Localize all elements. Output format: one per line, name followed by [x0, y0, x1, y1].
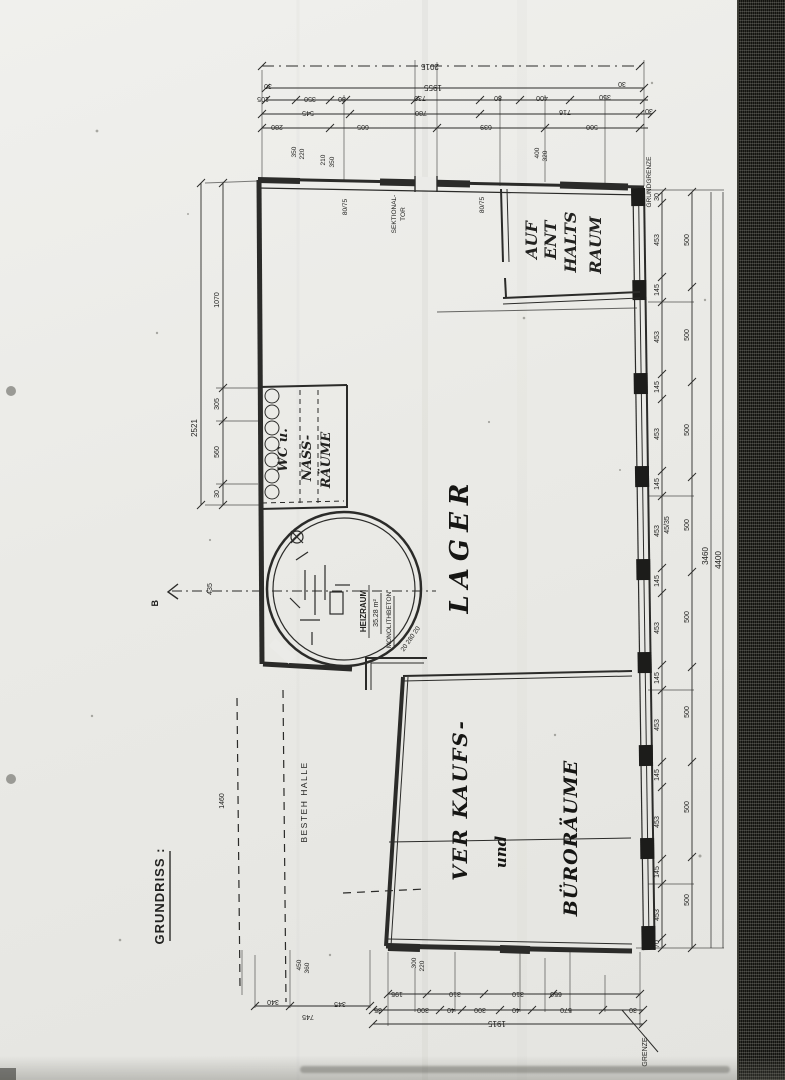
room-label-und: und: [492, 835, 510, 868]
dim-label: 453: [654, 234, 661, 246]
dim-label: 3460: [701, 547, 710, 565]
dim-label: 500: [684, 801, 691, 813]
left-wall: [259, 180, 262, 664]
door-size-label: 80/75: [342, 198, 349, 215]
dim-label: 345: [334, 1000, 346, 1007]
dim-label: 300: [411, 957, 418, 968]
dim-label: 320: [542, 150, 549, 161]
heizraum-outer-circle: [267, 512, 421, 666]
scanned-floor-plan-page: 2015 30 1955 30 105 350 80 730 80 400 35…: [0, 0, 785, 1080]
dim-label: 560: [214, 446, 221, 458]
right-dimension-ticks: [658, 188, 696, 952]
dim-label: 30: [645, 107, 653, 114]
dim-label: 500: [586, 123, 598, 130]
dim-label: 310: [512, 990, 524, 997]
dim-label: 450: [296, 959, 303, 970]
svg-text:SEKTIONAL-: SEKTIONAL-: [391, 195, 398, 234]
dim-label: 500: [684, 611, 691, 623]
heizraum-vestibule: [366, 658, 427, 690]
dim-label: 500: [684, 329, 691, 341]
dim-label: 435: [207, 583, 214, 595]
dim-label: 145: [654, 575, 661, 587]
dim-label: 30: [654, 193, 661, 201]
dim-label: 350: [304, 95, 316, 102]
section-marker-label: B: [150, 600, 160, 607]
wc-nassraeume: WC u. NASS- RÄUME: [259, 385, 347, 509]
dim-label: 40: [447, 1006, 455, 1013]
dim-label: 500: [684, 234, 691, 246]
top-wall: [258, 176, 644, 195]
dim-label: 500: [684, 519, 691, 531]
dim-label: 40: [512, 1006, 520, 1013]
dim-label: 500: [684, 424, 691, 436]
dim-label: 80: [338, 95, 346, 102]
dim-label: 2521: [190, 419, 199, 437]
dim-label: 400: [536, 94, 548, 101]
dim-label: 350: [291, 146, 298, 157]
room-label-bueroraeume: BÜRORÄUME: [559, 760, 582, 918]
dim-label: 500: [684, 894, 691, 906]
room-label-aufenthaltsraum: HALTS: [561, 212, 580, 274]
scan-artifacts: [91, 0, 706, 1080]
dim-label: 195: [391, 990, 403, 997]
dim-label: 145: [654, 478, 661, 490]
dim-label: 145: [654, 769, 661, 781]
material-label: MONOLITHBETON: [386, 591, 393, 648]
dim-label: 545: [302, 109, 314, 116]
dim-label: 340: [267, 998, 279, 1005]
dim-label: 1460: [219, 793, 226, 809]
bottom-dimension-chains: 450 360 300 220 340 345 195 310 310 650 …: [242, 950, 658, 1067]
floor-plan-drawing: 2015 30 1955 30 105 350 80 730 80 400 35…: [0, 0, 785, 1080]
dim-label: 453: [654, 525, 661, 537]
dim-label: 780: [415, 109, 427, 116]
dim-label: 30: [214, 490, 221, 498]
dim-label: 453: [654, 622, 661, 634]
dim-label: 605: [357, 123, 369, 130]
room-label-verkauf: VER KAUFS-: [448, 719, 472, 881]
dim-label: 30: [264, 82, 272, 89]
dim-label: 310: [449, 990, 461, 997]
verkauf-bueroraeume: VER KAUFS- und BÜRORÄUME: [448, 719, 582, 917]
room-area-label: 35.28 m²: [373, 599, 380, 627]
room-label-aufenthaltsraum: ENT: [541, 220, 560, 261]
dim-label: 145: [654, 672, 661, 684]
west-wall-diagonal: [386, 677, 408, 946]
dim-label: 220: [419, 960, 426, 971]
svg-text:TOR: TOR: [400, 207, 407, 221]
dim-label: 350: [599, 93, 611, 100]
scan-smudge: [300, 1066, 730, 1073]
left-dimension-chain: 2521 1070 305 560 30 435 1460 B: [150, 179, 436, 809]
dim-label: 730: [414, 94, 426, 101]
grundgrenze-label: GRUNDGRENZE: [646, 156, 653, 208]
dim-label: 30: [618, 80, 626, 87]
dim-label: 453: [654, 331, 661, 343]
room-label-heizraum: HEIZRAUM: [359, 590, 368, 633]
dim-label: 80: [494, 94, 502, 101]
sheet-title: GRUNDRISS :: [152, 848, 170, 945]
room-label-besteh-halle: BESTEH HALLE: [299, 761, 309, 842]
dim-label: 210: [320, 154, 327, 165]
dim-label: 220: [299, 148, 306, 159]
dim-label: 1915: [488, 1019, 506, 1028]
top-dimension-ticks: [258, 62, 656, 132]
corner-smudge: [0, 1068, 16, 1080]
room-label-aufenthaltsraum: AUF: [522, 220, 541, 261]
dim-label: 145: [654, 381, 661, 393]
room-label-aufenthaltsraum: RAUM: [586, 215, 605, 275]
dim-label: 145: [654, 866, 661, 878]
dim-label: 650: [550, 990, 562, 997]
grundriss-title: GRUNDRISS :: [152, 848, 167, 945]
sektionaltor-label: SEKTIONAL- TOR: [391, 195, 407, 234]
dim-label: 716: [559, 108, 571, 115]
dim-label: 639: [480, 123, 492, 130]
dim-label: 300: [417, 1006, 429, 1013]
dim-label: 145: [654, 284, 661, 296]
dim-label: 2015: [421, 62, 439, 71]
dim-label: 300: [474, 1006, 486, 1013]
room-label-nassraeume: RÄUME: [318, 431, 334, 490]
wall-note-label: 45/35: [664, 516, 671, 534]
dim-label: 35: [374, 1006, 382, 1013]
punch-holes: [6, 386, 16, 784]
dim-label: 280: [271, 123, 283, 130]
dim-label: 1955: [424, 83, 442, 92]
scanner-edge-strip: [737, 0, 785, 1080]
dim-label: 400: [534, 147, 541, 158]
dim-label: 105: [257, 95, 269, 102]
dim-label: 745: [302, 1013, 314, 1020]
door-size-label: 80/75: [479, 196, 486, 213]
room-label-lager: LAGER: [445, 476, 475, 614]
dim-label: 305: [214, 398, 221, 410]
dim-label: 570: [560, 1006, 572, 1013]
room-label-wc: WC u.: [276, 428, 291, 471]
dim-label: 360: [304, 962, 311, 973]
dim-label: 1070: [214, 292, 221, 308]
dim-label: 453: [654, 816, 661, 828]
section-line-b: B: [150, 584, 436, 607]
dim-label: 453: [654, 719, 661, 731]
dim-label: 453: [654, 428, 661, 440]
dim-label: 350: [329, 156, 336, 167]
dim-label: 30: [629, 1006, 637, 1013]
dim-label: 500: [684, 706, 691, 718]
dim-label: 4400: [714, 551, 723, 569]
room-label-nassraeume: NASS-: [300, 435, 315, 482]
